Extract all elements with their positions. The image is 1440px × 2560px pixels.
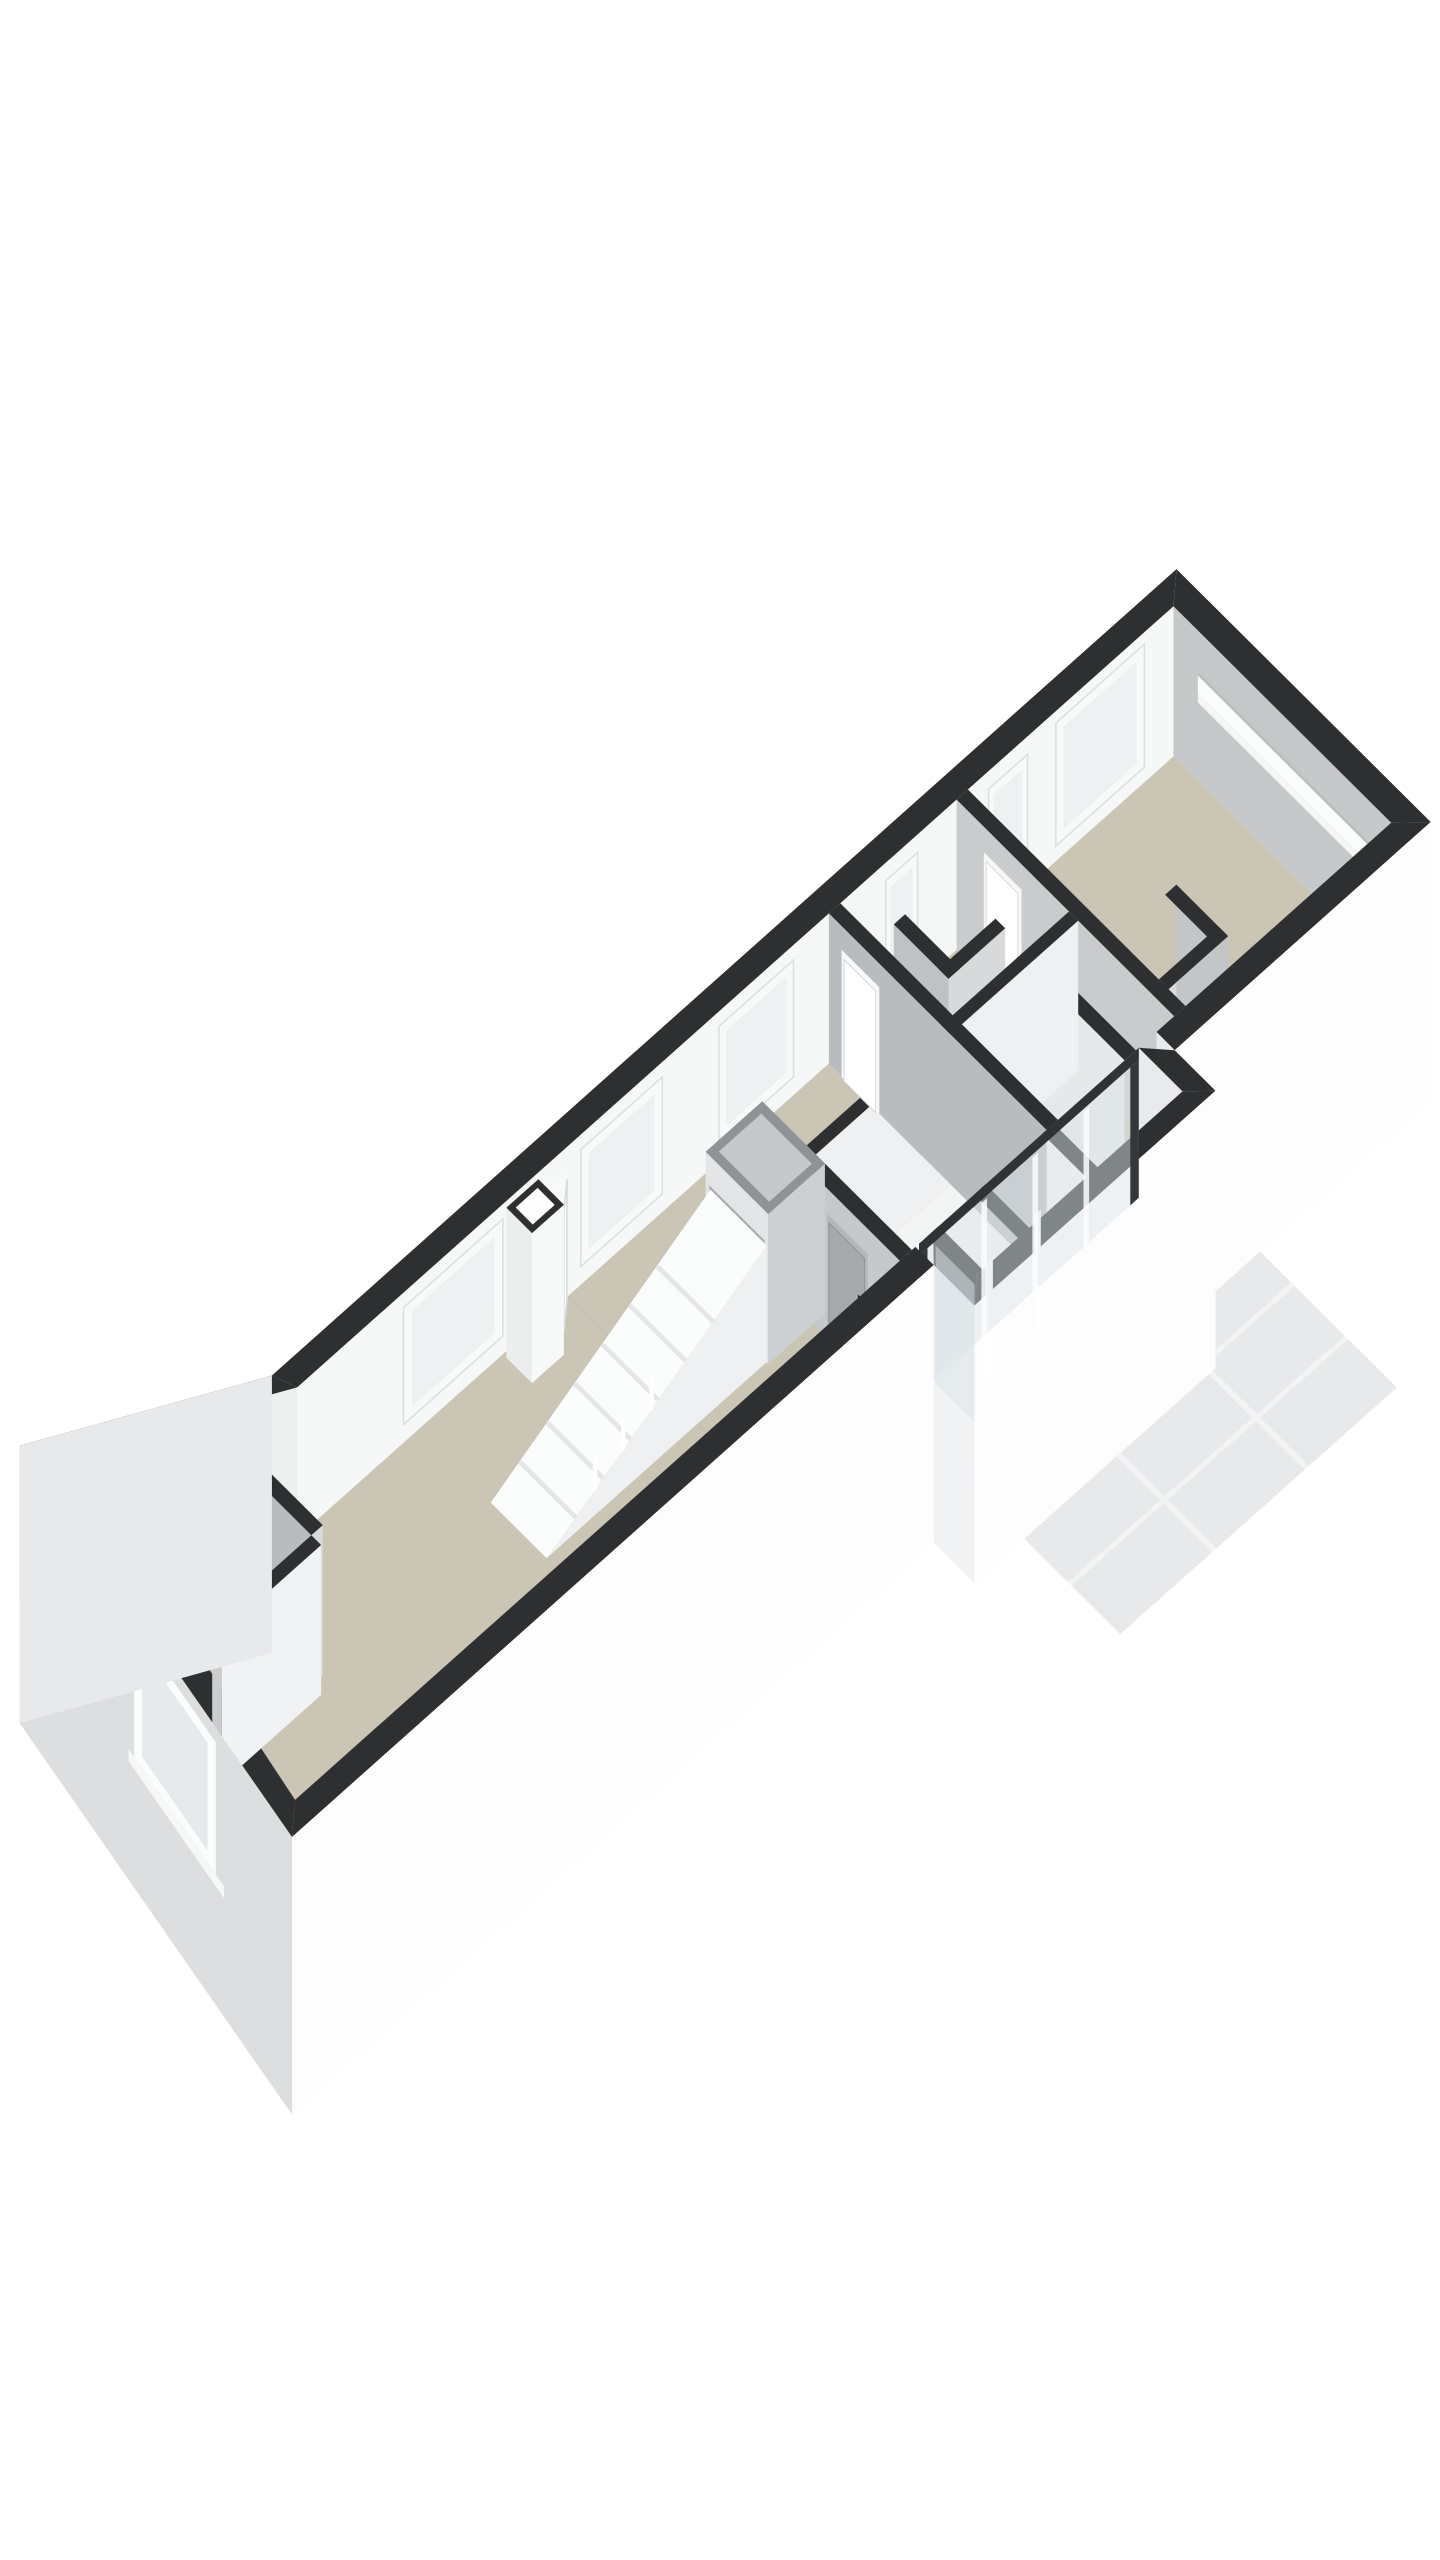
glazed-wall-mullion: [981, 1198, 987, 1338]
stair-baluster: [649, 1376, 653, 1413]
chimney-right-face: [532, 1205, 564, 1383]
glazed-wall-mullion: [1032, 1153, 1038, 1293]
stair-baluster: [621, 1416, 625, 1453]
floorplan-3d-render: [0, 0, 1440, 2560]
chimney-front-face: [506, 1208, 532, 1383]
side-door-leaf: [564, 1179, 567, 1332]
stair-baluster: [593, 1456, 597, 1493]
glazed-wall-frame-dark: [1130, 1060, 1139, 1206]
floorplan-svg: [0, 0, 1440, 2560]
glazed-wall-mullion: [1084, 1107, 1090, 1247]
